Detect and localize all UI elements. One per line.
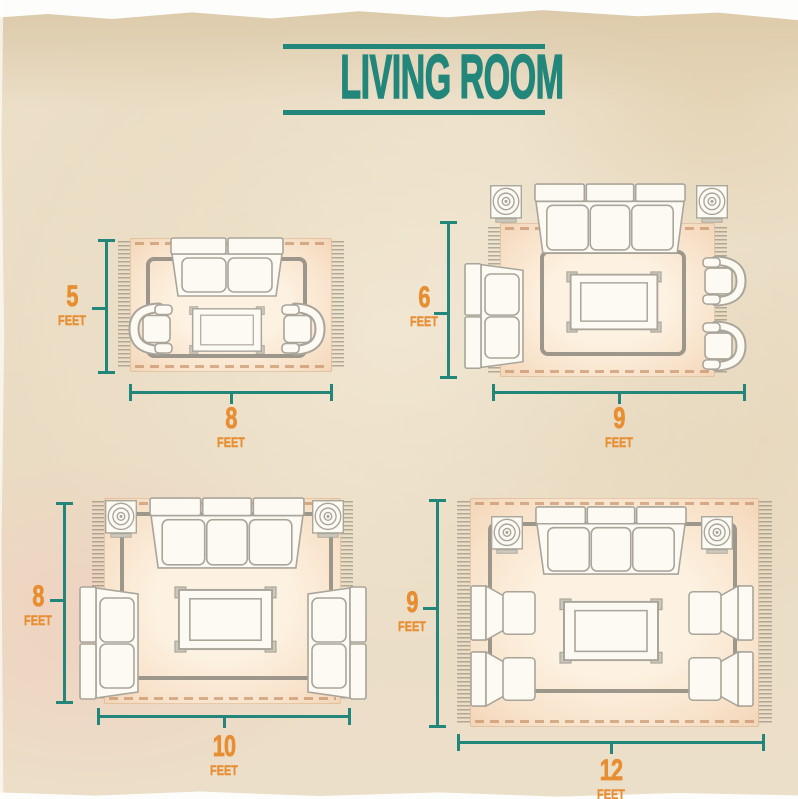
height-label: 9 FEET (382, 588, 442, 633)
width-label: 12 FEET (575, 756, 647, 799)
width-value: 12 (585, 756, 637, 786)
diagram-rug-9x12: 9 FEET 12 FEET (0, 0, 798, 799)
coffee-table (559, 598, 663, 664)
height-unit: FEET (389, 619, 436, 633)
armchair (469, 584, 537, 642)
width-unit: FEET (583, 787, 639, 799)
armchair (687, 584, 755, 642)
rug-fringe-right (759, 501, 772, 724)
side-table (700, 515, 734, 555)
armchair (469, 650, 537, 708)
three-seat-sofa (532, 505, 690, 576)
height-value: 9 (390, 588, 433, 618)
armchair (687, 650, 755, 708)
infographic-canvas: LIVING ROOM 5 FEET 8 FEET (0, 0, 798, 799)
side-table (490, 515, 524, 555)
rug-edge-pattern (475, 720, 754, 723)
